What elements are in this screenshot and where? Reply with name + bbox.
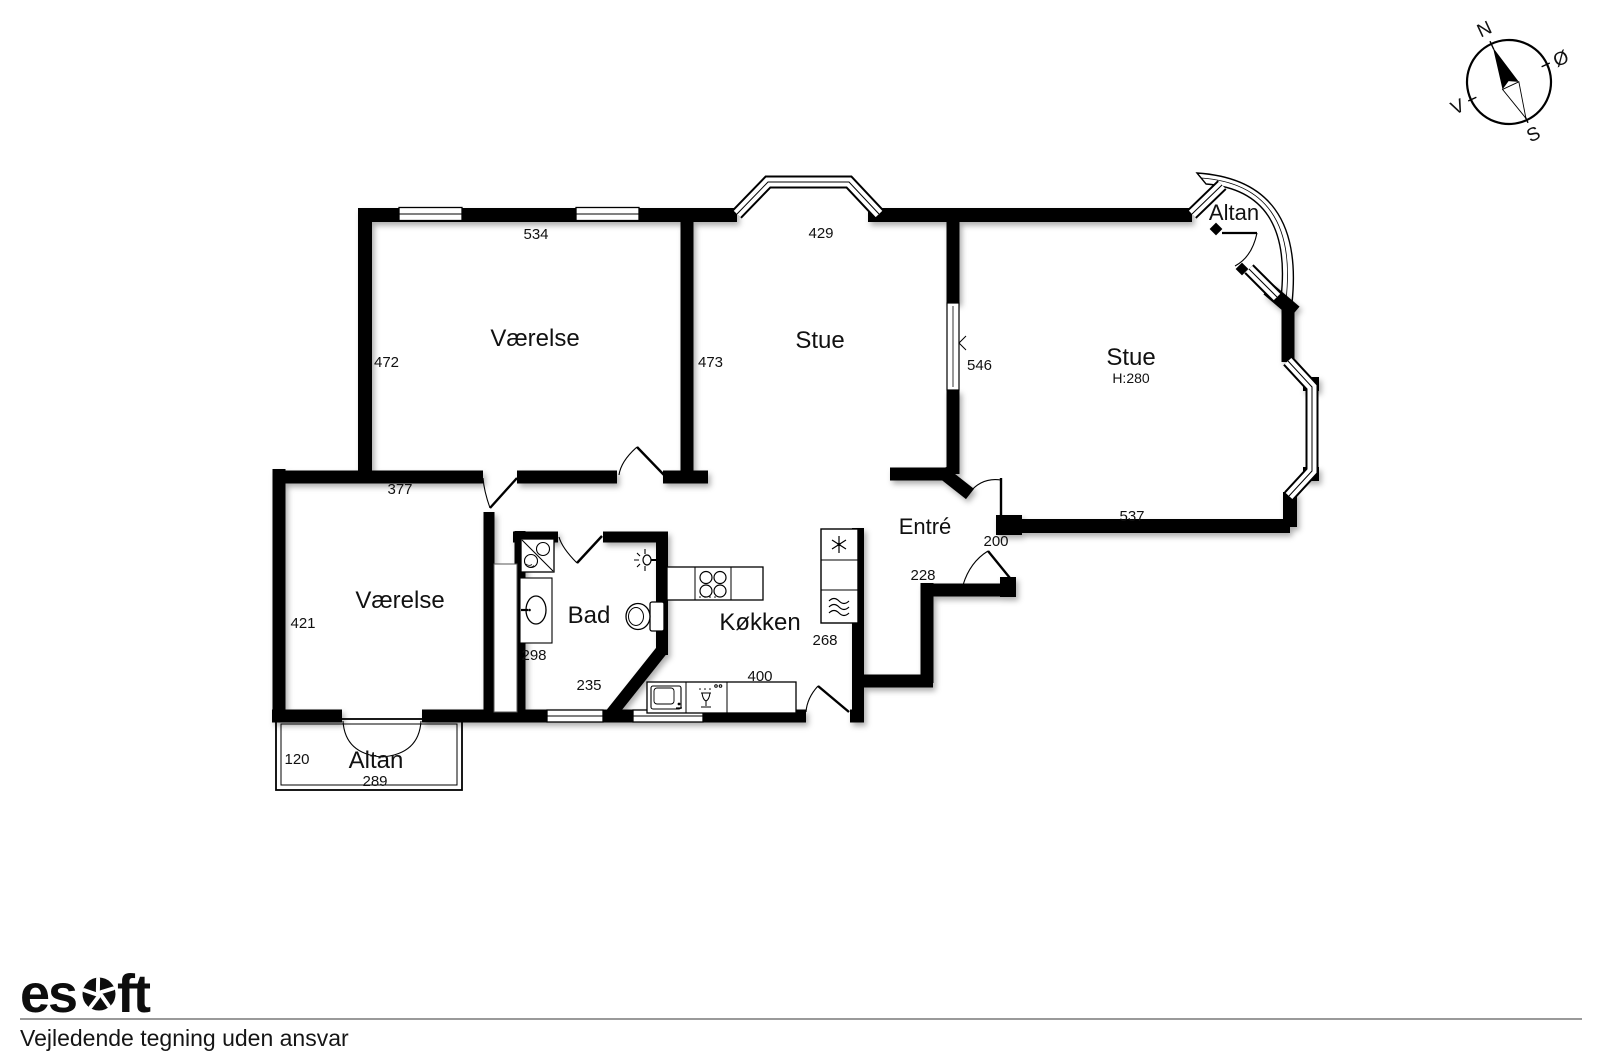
door-top-bedroom [619,447,664,475]
dim-268: 268 [812,632,837,649]
compass-w: V [1448,95,1469,120]
dim-546: 546 [967,357,992,374]
room-label-living-mid: Stue [795,327,844,354]
aperture-gear-icon [83,978,116,1011]
dim-421: 421 [290,615,315,632]
room-label-kitchen: Køkken [719,609,800,636]
dim-289: 289 [362,773,387,790]
dim-400: 400 [747,668,772,685]
dim-120: 120 [284,751,309,768]
kitchen-lower-counter [647,682,796,713]
window [576,208,639,221]
dim-473: 473 [698,354,723,371]
closet [494,564,517,712]
washbasin-icon [520,578,552,643]
compass-s: S [1524,123,1544,147]
dim-472: 472 [374,354,399,371]
wall-segment [942,472,970,494]
door-back-kitchen [806,686,849,712]
door-entry-living [969,478,1001,516]
room-label-bedroom-top: Værelse [490,325,579,352]
fridge-freezer-unit [821,529,858,623]
footer: es ft Vejledende tegning uden ansvar [20,964,1582,1051]
window [547,710,603,722]
dim-228: 228 [910,567,935,584]
washer-dryer-icon [521,539,554,572]
walls [272,208,1319,716]
ceiling-height-label: H:280 [1112,370,1150,386]
fixtures [494,529,858,713]
door-bath [559,536,602,563]
compass-needle-south [1503,82,1535,122]
disclaimer-text: Vejledende tegning uden ansvar [20,1025,349,1051]
door-top-balcony [1210,223,1257,276]
dim-429: 429 [808,225,833,242]
compass-ring [1453,26,1565,138]
bay-window [737,182,879,214]
window [399,208,462,221]
toilet-icon [626,602,664,631]
floor-plan-canvas: Værelse 534 472 473 Stue 429 546 Stue H:… [0,0,1600,1062]
room-label-bath: Bad [568,602,611,629]
room-label-balcony-top: Altan [1209,200,1259,225]
wall-corner-block [996,515,1022,535]
dim-537: 537 [1119,508,1144,525]
room-label-living-right: Stue [1106,344,1155,371]
dim-298: 298 [521,647,546,664]
dim-200: 200 [983,533,1008,550]
kitchen-peninsula-counter [667,567,763,600]
logo-text-ft: ft [117,964,151,1024]
room-label-bedroom-bottom: Værelse [355,587,444,614]
dim-235: 235 [576,677,601,694]
sliding-door [947,303,966,390]
esoft-logo: es ft [20,964,151,1024]
compass-e: Ø [1550,47,1572,72]
room-label-entry: Entré [899,514,952,539]
door-bottom-bedroom [483,478,517,508]
doors [343,223,1257,757]
logo-text-es: es [20,964,76,1024]
room-label-balcony-bottom: Altan [349,747,404,774]
compass-n: N [1474,17,1495,42]
dim-534: 534 [523,226,548,243]
chevron-left-icon [959,336,966,350]
compass-rose-icon: N Ø S V [1423,0,1597,171]
compass-needle-north [1485,44,1519,90]
dim-377: 377 [387,481,412,498]
footer-divider [20,1018,1582,1020]
